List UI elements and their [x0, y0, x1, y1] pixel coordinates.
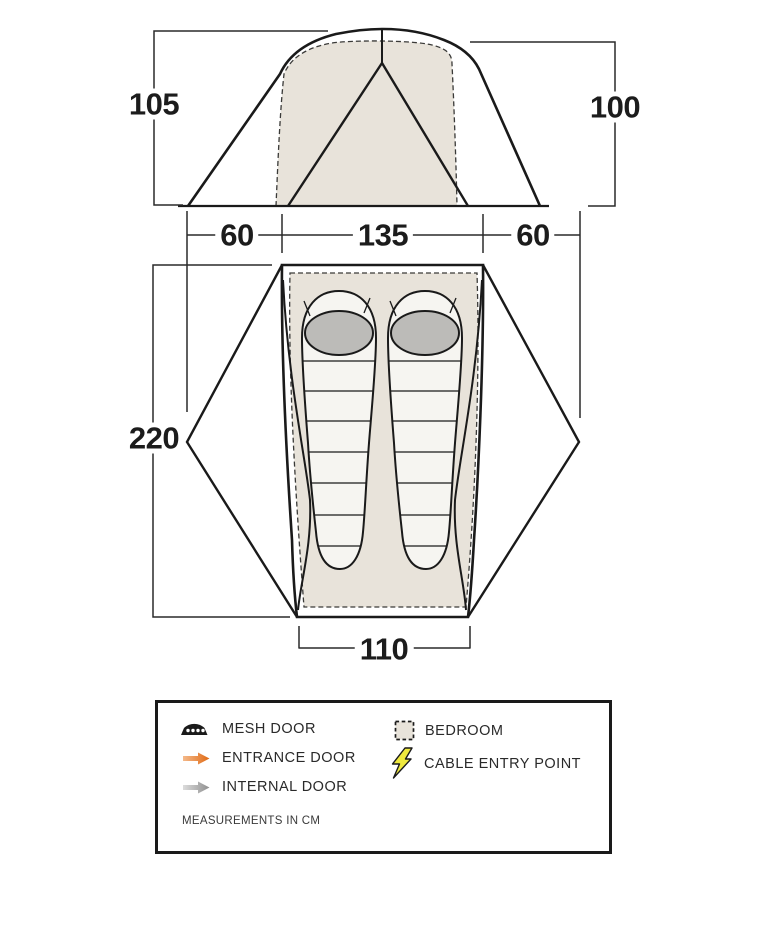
- dim-label-width-left: 60: [215, 220, 258, 251]
- legend-label: MESH DOOR: [222, 721, 316, 737]
- legend-box: MESH DOOR ENTRANCE DOOR: [155, 700, 612, 854]
- measurements-note: MEASUREMENTS IN CM: [182, 815, 320, 827]
- legend-item-mesh-door: MESH DOOR: [180, 721, 316, 737]
- legend-item-cable-entry-point: CABLE ENTRY POINT: [391, 747, 581, 780]
- tent-dimensions-diagram: 105 100 60 135 60 220 110 MESH DOOR: [0, 0, 770, 926]
- mesh-door-icon: [180, 723, 209, 736]
- legend-item-bedroom: BEDROOM: [394, 720, 503, 741]
- dim-label-height-left: 105: [124, 89, 184, 120]
- entrance-door-icon: [183, 752, 210, 765]
- internal-door-icon: [183, 781, 210, 794]
- legend-label: BEDROOM: [425, 723, 503, 739]
- legend-label: INTERNAL DOOR: [222, 779, 347, 795]
- cable-entry-point-icon: [391, 747, 415, 780]
- legend-item-internal-door: INTERNAL DOOR: [183, 779, 347, 795]
- sleeping-bag-hood: [305, 311, 373, 355]
- dim-label-door-width: 110: [355, 634, 414, 665]
- dim-label-height-right: 100: [585, 92, 645, 123]
- sleeping-bag-hood: [391, 311, 459, 355]
- dim-label-length: 220: [124, 423, 184, 454]
- legend-item-entrance-door: ENTRANCE DOOR: [183, 750, 356, 766]
- legend-label: CABLE ENTRY POINT: [424, 756, 581, 772]
- dim-label-width-right: 60: [511, 220, 554, 251]
- elevation-view: [154, 29, 615, 206]
- floor-plan: [153, 265, 579, 648]
- dim-label-width-center: 135: [353, 220, 413, 251]
- bedroom-icon: [394, 720, 415, 741]
- legend-label: ENTRANCE DOOR: [222, 750, 356, 766]
